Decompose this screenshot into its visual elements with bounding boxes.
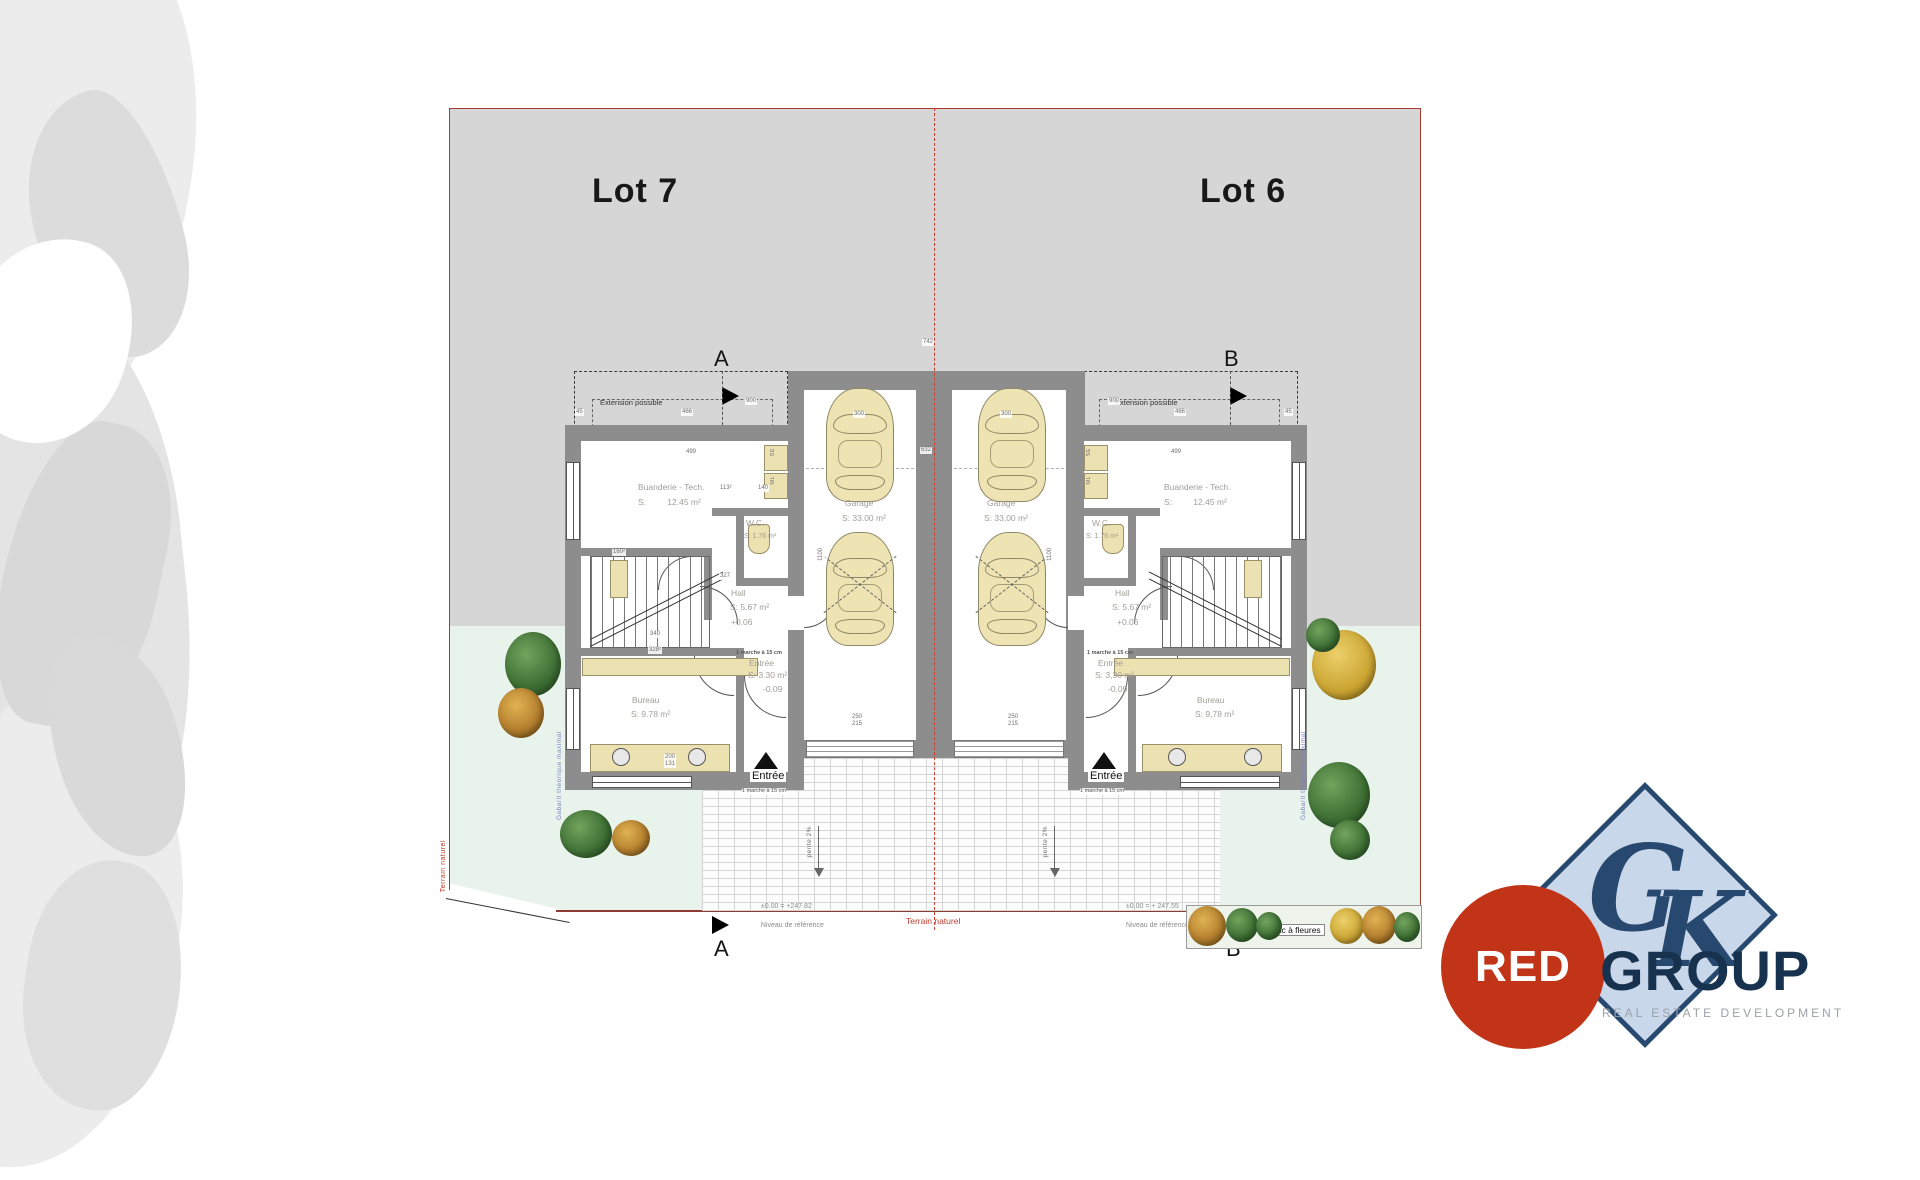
terrain-naturel-bottom: Terrain naturel xyxy=(906,916,960,926)
car-roof xyxy=(838,440,882,468)
section-arrow-icon xyxy=(1230,387,1247,405)
room-label-garage: Garage xyxy=(845,498,873,508)
level-value: ±0.00 = + 247.55 xyxy=(1126,903,1179,910)
room-label-hall: Hall xyxy=(1115,588,1130,598)
section-marker-a-bottom: A xyxy=(714,936,729,962)
room-area-buanderie: S: 12.45 m² xyxy=(638,497,701,507)
lot-6-title: Lot 6 xyxy=(1200,172,1286,211)
room-area-hall: S: 5.67 m² xyxy=(1112,602,1151,612)
dimension-label: 215 xyxy=(851,721,863,728)
terrain-naturel-left: Terrain naturel xyxy=(440,840,447,892)
garage-door-right xyxy=(954,740,1064,758)
chair xyxy=(1168,748,1186,766)
window xyxy=(1292,462,1306,540)
car xyxy=(978,388,1046,502)
car-roof xyxy=(990,440,1034,468)
door-opening-garage-left xyxy=(788,596,804,630)
tree xyxy=(1362,906,1396,944)
tree xyxy=(498,688,544,738)
car-rear-window xyxy=(835,619,885,634)
tree xyxy=(1256,912,1282,940)
partition xyxy=(1084,508,1160,516)
chair xyxy=(688,748,706,766)
dimension-label: 327 xyxy=(719,573,731,580)
reference-level-right: ±0.00 = + 247.55 Niveau de référence xyxy=(1122,892,1189,931)
window xyxy=(592,776,692,788)
property-line-right xyxy=(1420,108,1421,920)
partition xyxy=(1136,648,1291,656)
car-roof xyxy=(990,584,1034,612)
tree xyxy=(612,820,650,856)
dimension-label: 140 xyxy=(757,485,769,492)
car-roof xyxy=(838,584,882,612)
dimension-label: 113² xyxy=(719,485,733,492)
porch-entree-label-right: Entrée xyxy=(1088,770,1124,782)
room-area-entree: S: 3.30 m² xyxy=(748,670,787,680)
gabarit-note-left: Gabarit théorique maximal xyxy=(556,690,563,820)
dimension-label: 45 xyxy=(575,409,584,416)
tree xyxy=(505,632,561,696)
porch-note-right: 1 marche à 15 cm xyxy=(1080,788,1124,795)
lot-7-title: Lot 7 xyxy=(592,172,678,211)
section-line xyxy=(722,371,723,425)
chair xyxy=(1244,748,1262,766)
wardrobe xyxy=(582,658,758,676)
level-value: ±0.00 = +247.82 xyxy=(761,903,812,910)
section-marker-b-top: B xyxy=(1224,346,1239,372)
appliance-label-ml: ML xyxy=(770,476,776,485)
dimension-label: 466 xyxy=(681,409,693,416)
level-caption: Niveau de référence xyxy=(1126,922,1189,929)
room-area-bureau: S: 9,78 m² xyxy=(1195,709,1234,719)
room-label-buanderie: Buanderie - Tech. xyxy=(638,482,704,492)
room-label-wc: W.C. xyxy=(1092,518,1110,528)
room-label-entree: Entrée xyxy=(1098,658,1123,668)
stair-note: 1 marche à 15 cm xyxy=(1087,650,1133,657)
partition xyxy=(1160,548,1291,556)
car xyxy=(978,532,1046,646)
logo-red-text: RED xyxy=(1475,942,1571,992)
dryer-unit xyxy=(764,445,788,471)
dimension-label: 632 xyxy=(920,447,932,454)
car xyxy=(826,532,894,646)
lot-centerline xyxy=(934,108,935,930)
dimension-label: 131 xyxy=(664,761,676,768)
room-label-wc: W.C. xyxy=(746,518,764,528)
appliance-label-se: SE xyxy=(1086,448,1092,456)
logo-red-circle: RED xyxy=(1441,885,1605,1049)
partition xyxy=(581,548,712,556)
partition xyxy=(712,508,788,516)
appliance-label-ml: ML xyxy=(1086,476,1092,485)
dimension-label: 1100 xyxy=(817,548,826,561)
room-area-entree: S: 3,30 m² xyxy=(1095,670,1134,680)
stair-note: 1 marche à 15 cm xyxy=(736,650,782,657)
dimension-label: 900 xyxy=(745,398,757,405)
room-area-wc: S: 1.76 m² xyxy=(744,533,776,541)
dimension-label: 215 xyxy=(1007,721,1019,728)
dimension-label: 200 xyxy=(664,754,676,761)
level-hall: +0.06 xyxy=(1117,617,1139,627)
level-entree: -0.09 xyxy=(1108,684,1127,694)
slope-arrow xyxy=(1054,826,1055,868)
partition xyxy=(736,516,744,586)
door-opening-garage-right xyxy=(1068,596,1084,630)
hall-cupboard xyxy=(1244,560,1262,598)
logo-tagline: REAL ESTATE DEVELOPMENT xyxy=(1602,1006,1844,1020)
chair xyxy=(612,748,630,766)
tree xyxy=(1308,762,1370,828)
partition xyxy=(1128,516,1136,586)
appliance-label-se: SE xyxy=(770,448,776,456)
window xyxy=(566,688,580,750)
dimension-label: 160² xyxy=(612,549,626,556)
architectural-site-plan: { "lots": { "left": "Lot 7", "right": "L… xyxy=(0,0,1920,1080)
dimension-label: 499 xyxy=(1170,449,1182,456)
extension-label-left: Extension possible xyxy=(600,398,663,407)
room-label-bureau: Bureau xyxy=(632,695,659,705)
dimension-label: 499 xyxy=(685,449,697,456)
room-label-garage: Garage xyxy=(987,498,1015,508)
porch-entree-label-left: Entrée xyxy=(750,770,786,782)
section-line xyxy=(1230,371,1231,425)
desk-left xyxy=(590,744,730,772)
dimension-label: 45 xyxy=(1284,409,1293,416)
dimension-label: 742 xyxy=(922,339,934,346)
entrance-arrow-icon xyxy=(1092,752,1116,769)
logo-group-text: GROUP xyxy=(1600,938,1810,1003)
room-area-wc: S: 1.76 m² xyxy=(1086,533,1118,541)
slope-arrow-head xyxy=(814,868,824,877)
section-arrow-icon xyxy=(722,387,739,405)
dimension-label: 466 xyxy=(1174,409,1186,416)
section-arrow-icon xyxy=(712,916,729,934)
car-rear-window xyxy=(987,475,1037,490)
wardrobe xyxy=(1114,658,1290,676)
window xyxy=(566,462,580,540)
slope-label-right: pente 2% xyxy=(1042,826,1049,857)
room-area-garage: S: 33.00 m² xyxy=(842,513,886,523)
room-label-bureau: Bureau xyxy=(1197,695,1224,705)
room-area-buanderie: S: 12.45 m² xyxy=(1164,497,1227,507)
tree xyxy=(1330,908,1364,944)
slope-label-left: pente 2% xyxy=(806,826,813,857)
car xyxy=(826,388,894,502)
dimension-label: 300 xyxy=(853,411,865,418)
dimension-label: 900 xyxy=(1108,398,1120,405)
dimension-label: 340 xyxy=(649,631,661,638)
level-entree: -0.09 xyxy=(763,684,782,694)
porch-note-left: 1 marche à 15 cm xyxy=(742,788,786,795)
tree xyxy=(1330,820,1370,860)
tree xyxy=(1226,908,1258,942)
garage-door-left xyxy=(806,740,914,758)
car-rear-window xyxy=(835,475,885,490)
slope-arrow-head xyxy=(1050,868,1060,877)
partition xyxy=(1084,578,1128,586)
tree xyxy=(1394,912,1420,942)
room-area-hall: S: 5.67 m² xyxy=(730,602,769,612)
dimension-label: 250 xyxy=(1007,714,1019,721)
car-rear-window xyxy=(987,619,1037,634)
reference-level-left: ±0.00 = +247.82 Niveau de référence xyxy=(757,892,824,931)
room-label-buanderie: Buanderie - Tech. xyxy=(1164,482,1230,492)
room-label-entree: Entrée xyxy=(749,658,774,668)
level-caption: Niveau de référence xyxy=(761,922,824,929)
staircase-right xyxy=(1162,556,1282,648)
dimension-label: 328² xyxy=(648,647,662,654)
gabarit-note-right: Gabarit théorique maximal xyxy=(1300,690,1307,820)
property-line-top xyxy=(449,108,1421,109)
hall-cupboard xyxy=(610,560,628,598)
dimension-label: 300 xyxy=(1000,411,1012,418)
tree xyxy=(560,810,612,858)
section-marker-a-top: A xyxy=(714,346,729,372)
partition xyxy=(744,578,788,586)
room-label-hall: Hall xyxy=(731,588,746,598)
slope-arrow xyxy=(818,826,819,868)
entrance-arrow-icon xyxy=(754,752,778,769)
extension-label-right: Extension possible xyxy=(1115,398,1178,407)
tree xyxy=(1306,618,1340,652)
property-line-left xyxy=(449,108,450,890)
room-area-bureau: S: 9.78 m² xyxy=(631,709,670,719)
window xyxy=(1180,776,1280,788)
dimension-label: 250 xyxy=(851,714,863,721)
level-hall: +0.06 xyxy=(731,617,753,627)
tree xyxy=(1188,906,1226,946)
room-area-garage: S: 33,00 m² xyxy=(984,513,1028,523)
dimension-label: 1100 xyxy=(1046,548,1055,561)
